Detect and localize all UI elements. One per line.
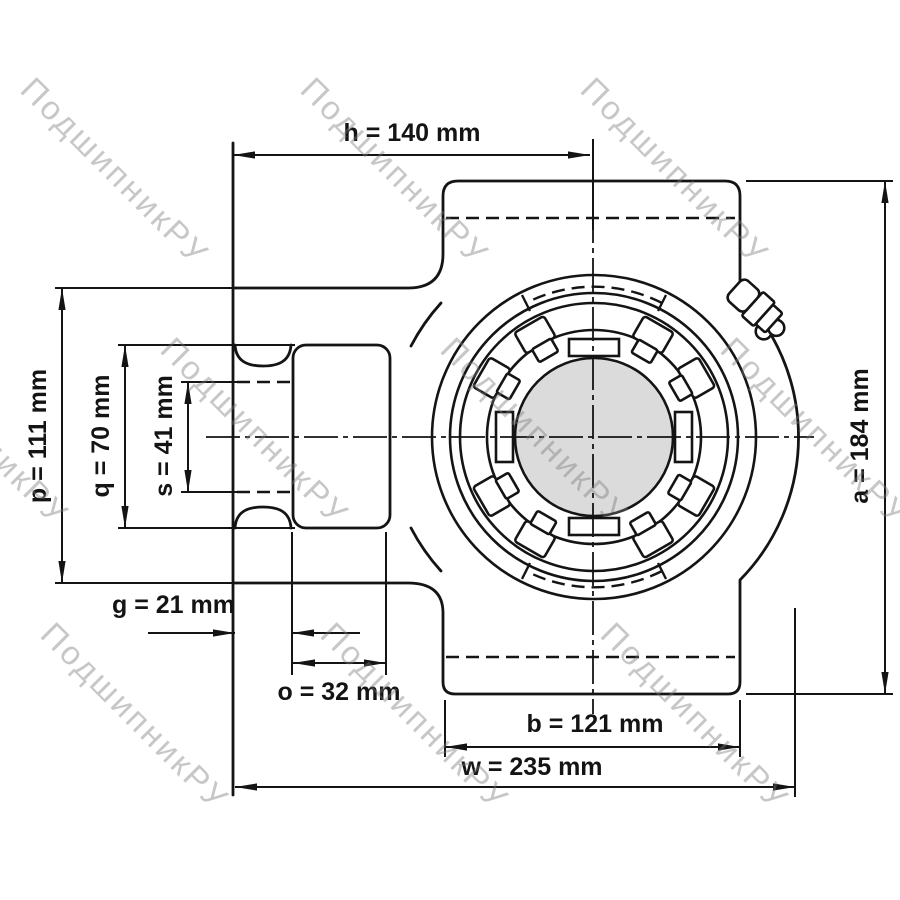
- dim-g-label: g = 21 mm: [112, 591, 235, 619]
- grease-nipple: [720, 276, 794, 348]
- drawing-canvas: h = 140 mm p = 111 mm q = 70 mm s = 41 m…: [0, 0, 900, 900]
- locknut-notch: [569, 518, 619, 535]
- dim-h-label: h = 140 mm: [344, 119, 481, 147]
- dimension-o: [293, 532, 386, 675]
- locknut-notch: [569, 339, 619, 356]
- boss-arc-left-upper: [411, 303, 441, 346]
- dim-a-label: a = 184 mm: [846, 368, 874, 504]
- bearing-unit-drawing: h = 140 mm p = 111 mm q = 70 mm s = 41 m…: [0, 0, 900, 900]
- slot-saddle-bottom: [235, 507, 291, 528]
- dim-o-label: o = 32 mm: [278, 678, 401, 706]
- dim-q-label: q = 70 mm: [87, 375, 115, 498]
- dimension-h: [233, 139, 593, 230]
- dim-w-label: w = 235 mm: [460, 753, 602, 781]
- boss-arc-left-lower: [411, 528, 441, 571]
- slot-saddle-top: [235, 345, 291, 366]
- dim-s-label: s = 41 mm: [150, 375, 178, 497]
- centerlines: [206, 160, 814, 714]
- dim-p-label: p = 111 mm: [24, 369, 52, 503]
- dimension-p: [55, 288, 233, 583]
- dim-b-label: b = 121 mm: [527, 710, 664, 738]
- dimension-lines: [55, 139, 893, 797]
